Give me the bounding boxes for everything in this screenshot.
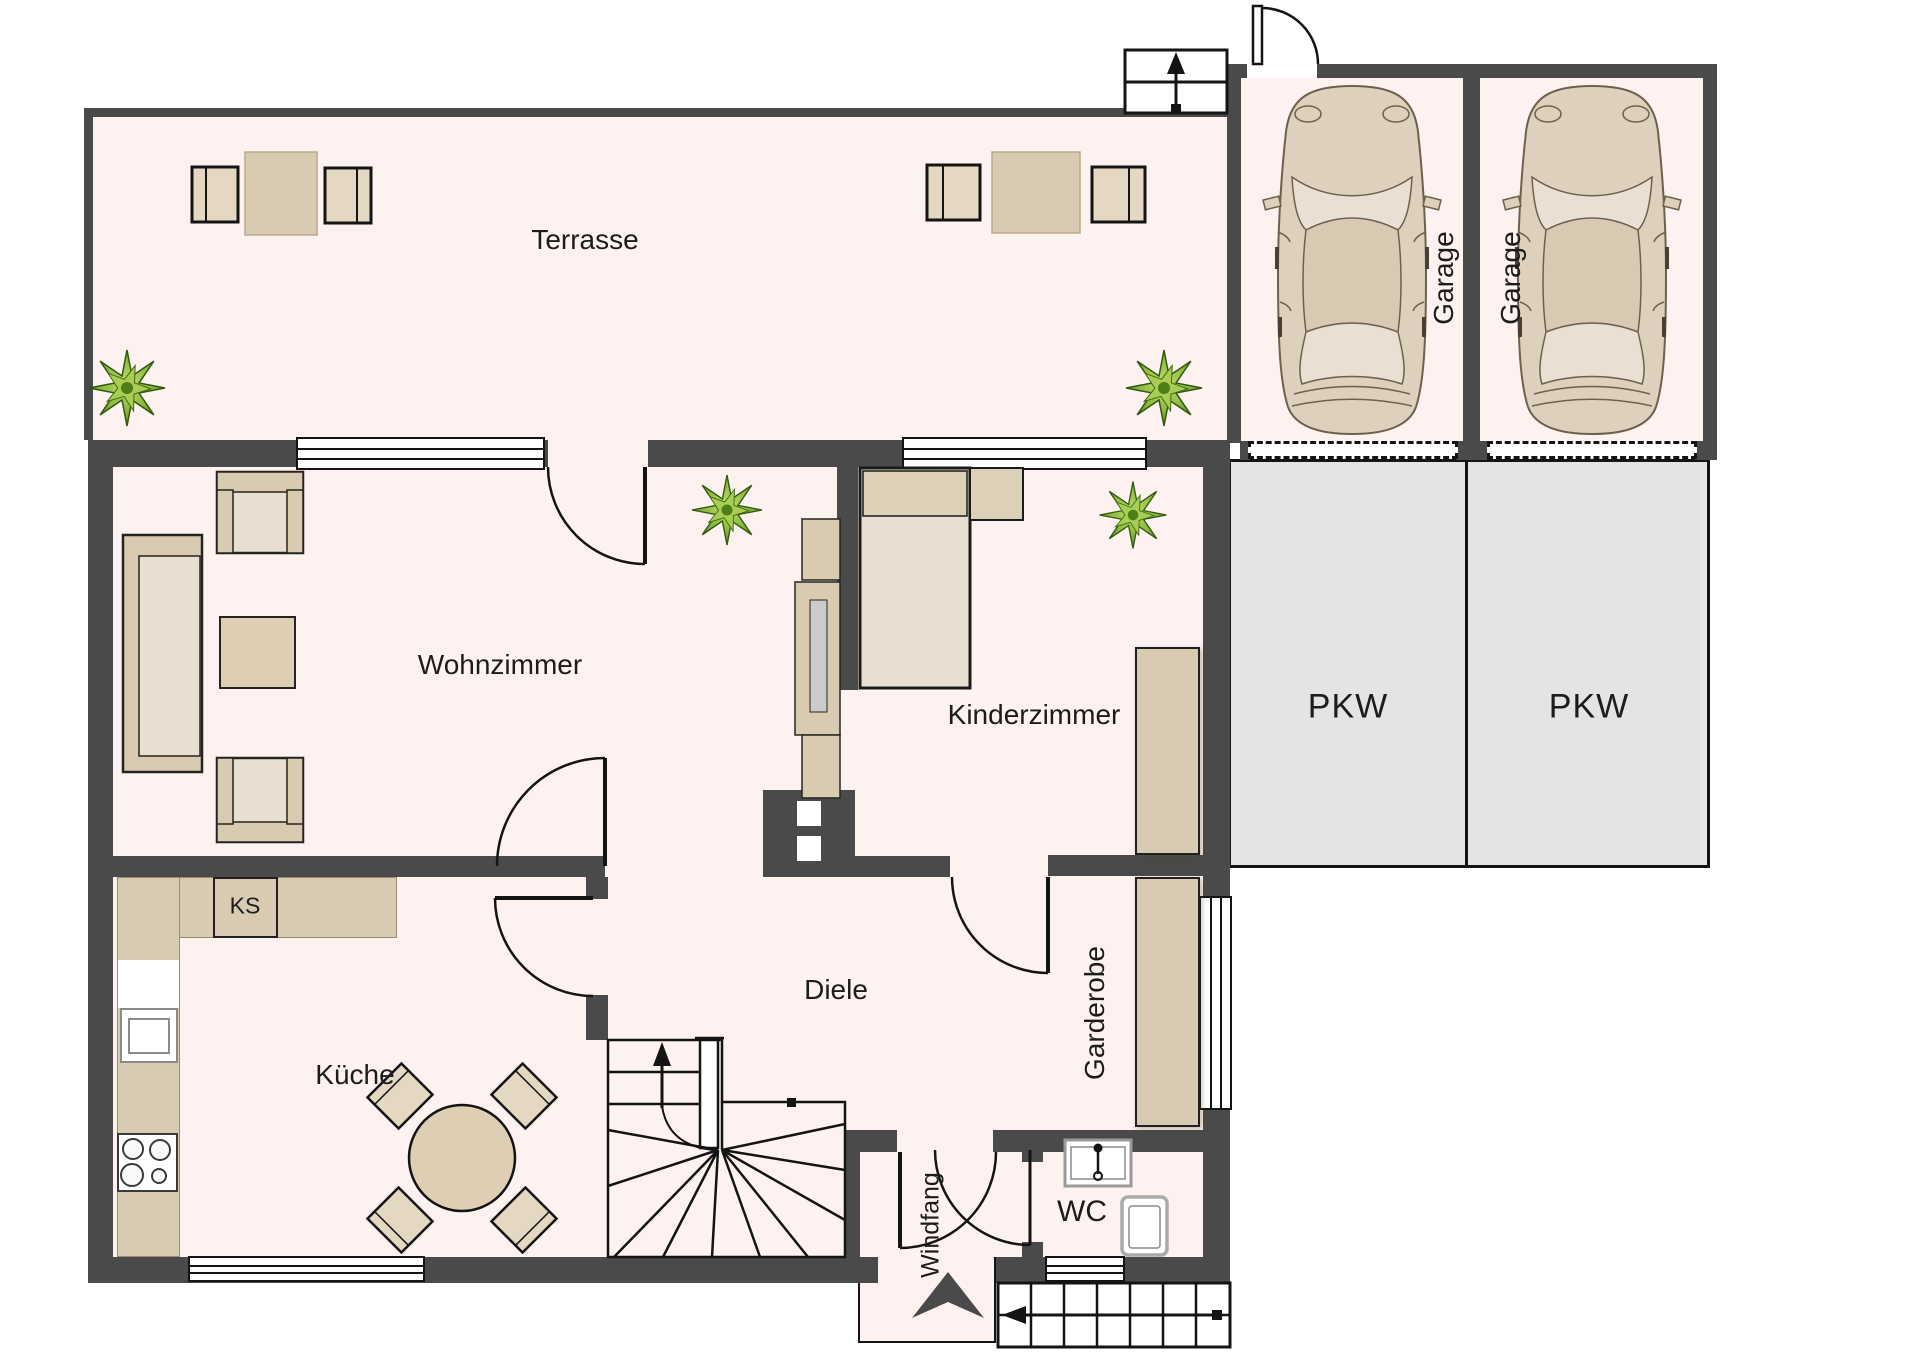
room-label-garage-right: Garage: [1495, 231, 1527, 324]
wall-living-child-divider: [837, 467, 858, 690]
room-label-kinderzimmer: Kinderzimmer: [948, 699, 1121, 731]
exterior-stairs-top: [1125, 50, 1227, 114]
wall-kitchen-hall-a: [586, 877, 608, 899]
garage-wall-divider: [1463, 78, 1480, 443]
room-label-wc: WC: [1057, 1195, 1107, 1229]
garage-wall-left: [1227, 64, 1241, 443]
garage-door-left: [1248, 441, 1458, 459]
window-childroom: [902, 437, 1147, 470]
kitchen-sink-basin: [128, 1018, 170, 1054]
wall-vestibule-top-b: [993, 1130, 1230, 1152]
wall-livingroom-kitchen: [113, 856, 605, 877]
wall-childroom-bottom-b: [1048, 855, 1203, 876]
room-label-diele: Diele: [804, 974, 868, 1006]
label-fridge-ks: KS: [230, 893, 261, 920]
room-label-wohnzimmer: Wohnzimmer: [418, 649, 582, 681]
room-label-kueche: Küche: [315, 1059, 394, 1091]
chimney-flue-2: [797, 836, 821, 861]
childroom-wardrobe: [1135, 647, 1200, 855]
house-wall-right: [1203, 440, 1230, 1283]
wall-wc-left-b: [1022, 1242, 1043, 1259]
terrace-floor: [93, 116, 1227, 440]
terrace-wall-left: [84, 108, 93, 440]
room-label-terrasse: Terrasse: [531, 224, 638, 256]
window-livingroom: [296, 437, 545, 470]
wall-wc-left-a: [1022, 1152, 1043, 1162]
garage-wall-right: [1703, 64, 1717, 459]
label-parking-right: PKW: [1549, 688, 1629, 727]
wardrobe-room-closet: [1135, 877, 1200, 1127]
kitchen-counter-left: [117, 877, 180, 1257]
garage-door-right: [1487, 441, 1697, 459]
wall-vestibule-top-a: [842, 1130, 897, 1152]
garage-door-stub-2: [1456, 441, 1487, 460]
garage-wall-top-b: [1317, 64, 1717, 78]
parking-space-left: [1228, 459, 1468, 868]
garage-side-door-arc: [1262, 8, 1318, 64]
wall-kitchen-hall-b: [586, 995, 608, 1040]
wall-childroom-bottom-a: [855, 856, 950, 877]
kitchen-appliance-gap: [118, 960, 179, 1008]
room-label-garage-left: Garage: [1428, 231, 1460, 324]
window-kitchen: [188, 1256, 425, 1282]
room-label-garderobe: Garderobe: [1079, 946, 1111, 1080]
window-wardrobe-room: [1199, 896, 1232, 1110]
exterior-stairs-entry: [998, 1283, 1230, 1347]
chimney-flue-1: [797, 801, 821, 826]
terrace-door-opening: [548, 440, 648, 467]
parking-space-right: [1465, 459, 1710, 868]
garage-side-door-leaf: [1253, 6, 1262, 64]
house-wall-left: [88, 440, 113, 1283]
wall-vestibule-left: [842, 1152, 860, 1259]
terrace-wall-top: [84, 108, 1227, 117]
window-wc: [1045, 1256, 1125, 1282]
kitchen-stove: [117, 1133, 178, 1192]
garage-door-stub-3: [1695, 441, 1717, 460]
label-parking-left: PKW: [1308, 688, 1388, 727]
room-label-windfang: Windfang: [917, 1172, 946, 1278]
floorplan-ground-floor: Terrasse Wohnzimmer Kinderzimmer Küche D…: [0, 0, 1920, 1357]
